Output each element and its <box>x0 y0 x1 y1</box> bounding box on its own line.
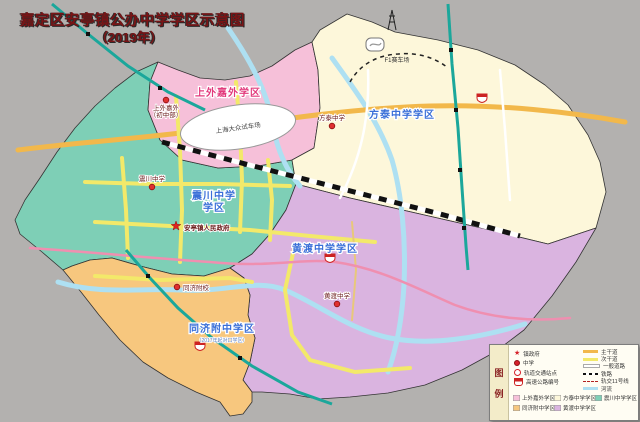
tower-icon <box>388 10 396 30</box>
star-icon: ★ <box>514 350 520 357</box>
metro-station-icon <box>514 369 521 376</box>
label-fangtai-district: 方泰中学学区 <box>369 108 435 121</box>
legend-label: 轨道交通站点 <box>524 369 557 377</box>
legend-title-char2: 例 <box>494 387 503 400</box>
label-fangtai-school: 方泰中学 <box>319 113 346 122</box>
legend-item-school: 中学 <box>514 359 559 369</box>
legend-line-items: 主干道 次干道 一般道路 铁路 轨交11号线 <box>583 348 629 392</box>
legend-district-fangtai: 方泰中学学区 <box>554 394 595 402</box>
legend-item-government: ★ 镇政府 <box>514 349 559 359</box>
label-huangdu-school: 黄渡中学 <box>324 291 351 300</box>
river-sample <box>583 387 598 390</box>
label-tongji-district-sub: （2017年起对口学区） <box>196 337 247 344</box>
legend-item-river: 河流 <box>583 385 629 392</box>
legend-district-huangdu: 黄渡中学学区 <box>554 404 595 412</box>
page-title-line1: 嘉定区安亭镇公办中学学区示意图 <box>20 12 238 30</box>
school-dot-icon <box>514 360 520 366</box>
legend-label: 震川中学学区 <box>604 394 637 402</box>
label-zhenchuan-district-l1: 震川中学 <box>192 189 236 202</box>
legend-title: 图 例 <box>490 345 509 420</box>
legend-point-items: ★ 镇政府 中学 轨道交通站点 高速公路编号 <box>514 349 559 387</box>
label-huangdu-district: 黄渡中学学区 <box>292 242 358 255</box>
label-zhenchuan-school: 震川中学 <box>139 174 166 183</box>
legend-district-zhenchuan: 震川中学学区 <box>595 394 636 402</box>
label-zhenchuan-district-l2: 学区 <box>203 201 225 214</box>
legend-label: 方泰中学学区 <box>563 394 596 402</box>
anting-school-district-map: 上海大众试车场 F1赛车场 上外嘉外学区 方泰中学学区 震川中学 学区 黄渡中学… <box>0 0 640 422</box>
legend-body: ★ 镇政府 中学 轨道交通站点 高速公路编号 <box>509 345 638 420</box>
label-town-government: 安亭镇人民政府 <box>184 223 230 232</box>
legend-district-shangwai: 上外嘉外学区 <box>513 394 554 402</box>
f1-track-icon <box>366 38 384 51</box>
label-shangwai-district: 上外嘉外学区 <box>195 86 261 99</box>
secondary-road-sample <box>583 358 598 361</box>
legend-label: 河流 <box>601 385 612 393</box>
label-shangwai-school: 上外嘉外 <box>153 103 180 112</box>
legend-label: 黄渡中学学区 <box>563 404 596 412</box>
metro-line-sample <box>583 381 598 382</box>
railway-sample <box>583 373 598 376</box>
legend-item-highway-shield: 高速公路编号 <box>514 378 559 388</box>
legend-label: 上外嘉外学区 <box>522 394 555 402</box>
main-road-sample <box>583 350 598 353</box>
legend-label: 中学 <box>523 359 534 367</box>
highway-shield-icon <box>514 378 523 386</box>
label-tongji-school: 同济附校 <box>183 283 210 292</box>
label-tongji-district: 同济附中学区 <box>189 322 255 335</box>
legend-label: 高速公路编号 <box>526 378 559 386</box>
page-title-line2: （2019年） <box>20 30 238 46</box>
f1-label: F1赛车场 <box>384 56 409 64</box>
minor-road-sample <box>583 364 600 368</box>
legend-title-char1: 图 <box>494 366 503 379</box>
legend-district-swatches: 上外嘉外学区 方泰中学学区 震川中学学区 同济附中学区 <box>513 393 635 413</box>
legend-item-metro-station: 轨道交通站点 <box>514 368 559 378</box>
legend-box: 图 例 ★ 镇政府 中学 轨道交通站点 高速公路编号 <box>489 344 639 421</box>
legend-district-tongji: 同济附中学区 <box>513 404 554 412</box>
legend-label: 镇政府 <box>523 350 540 358</box>
legend-label: 同济附中学区 <box>522 404 555 412</box>
page-title: 嘉定区安亭镇公办中学学区示意图 （2019年） <box>20 12 238 46</box>
label-shangwai-school-2: （初中部） <box>150 110 183 119</box>
